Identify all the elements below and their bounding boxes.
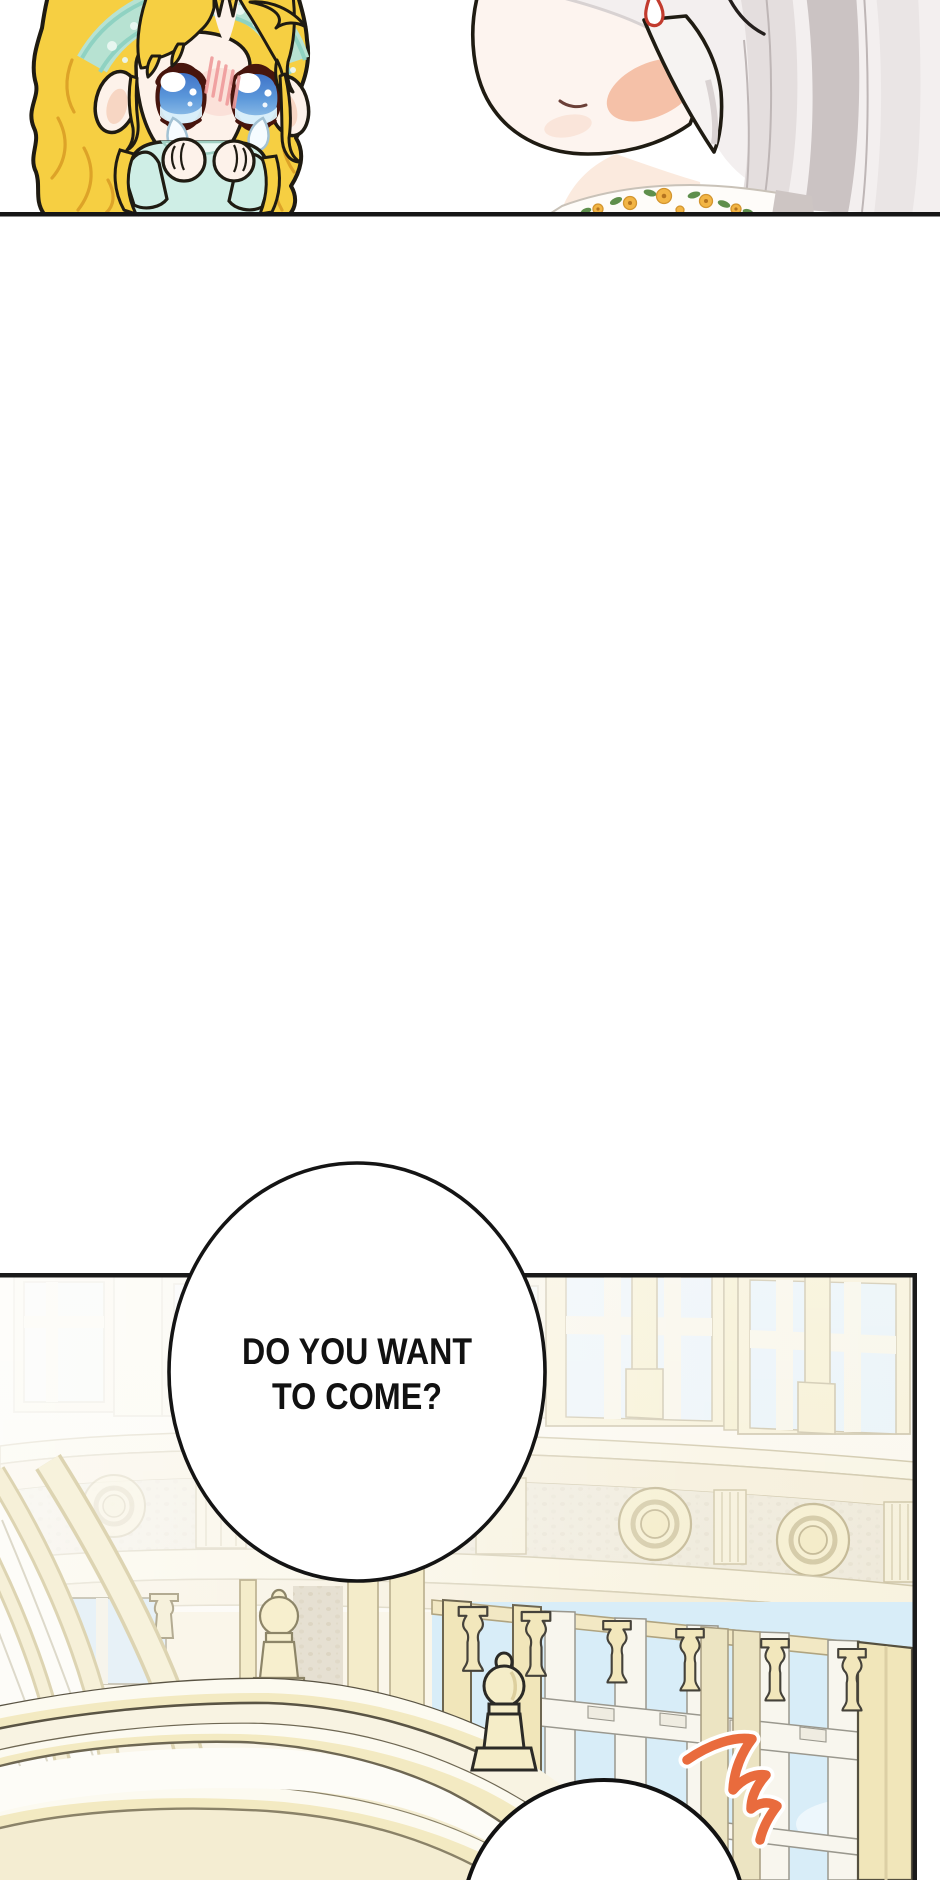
svg-text:TO COME?: TO COME? [272, 1376, 442, 1417]
svg-text:DO YOU WANT: DO YOU WANT [242, 1331, 472, 1372]
